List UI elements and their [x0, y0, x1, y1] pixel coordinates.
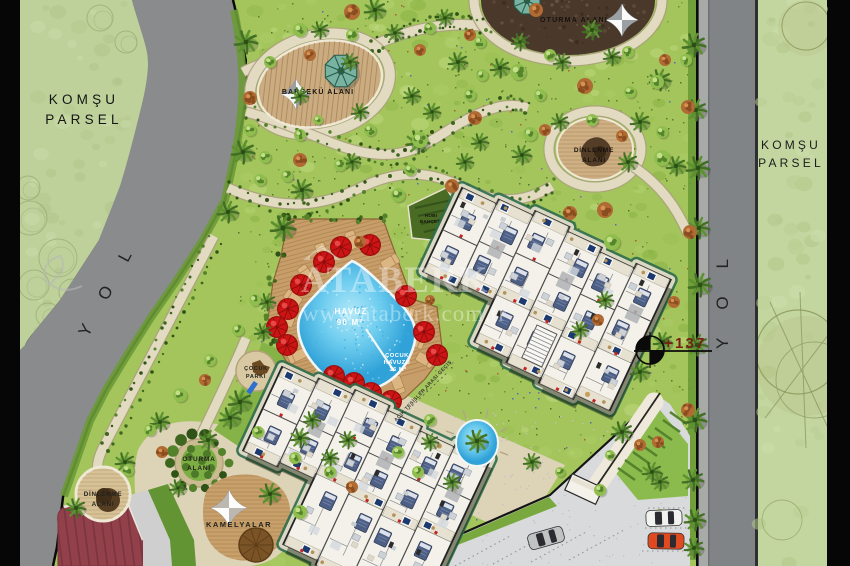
- svg-text:HOBİ: HOBİ: [425, 212, 437, 218]
- svg-text:ALANI: ALANI: [92, 501, 115, 508]
- svg-text:+137: +137: [664, 335, 707, 352]
- svg-text:PARSEL: PARSEL: [45, 112, 122, 127]
- svg-text:ALANI: ALANI: [582, 157, 606, 164]
- svg-text:ÇOCUK: ÇOCUK: [385, 353, 409, 359]
- svg-text:PARSEL: PARSEL: [758, 156, 824, 170]
- svg-text:YOL: YOL: [713, 231, 732, 349]
- svg-text:HAVUZU: HAVUZU: [384, 360, 411, 366]
- svg-text:PARKI: PARKI: [246, 374, 266, 380]
- svg-text:OTURMA: OTURMA: [182, 456, 215, 463]
- svg-text:KOMŞU: KOMŞU: [49, 92, 120, 107]
- svg-text:www.ataberk.com.tr: www.ataberk.com.tr: [302, 301, 507, 326]
- svg-text:DİNLENME: DİNLENME: [84, 490, 122, 498]
- svg-text:DİNLENME: DİNLENME: [574, 146, 614, 154]
- svg-text:ALANI: ALANI: [187, 465, 211, 472]
- svg-text:OTURMA ALANI: OTURMA ALANI: [540, 17, 608, 24]
- svg-text:KOMŞU: KOMŞU: [761, 138, 821, 152]
- svg-text:ATABERK: ATABERK: [301, 260, 489, 301]
- svg-text:16 M²: 16 M²: [389, 366, 406, 373]
- svg-text:KAMELYALAR: KAMELYALAR: [206, 520, 272, 529]
- svg-text:ÇOCUK: ÇOCUK: [244, 366, 268, 372]
